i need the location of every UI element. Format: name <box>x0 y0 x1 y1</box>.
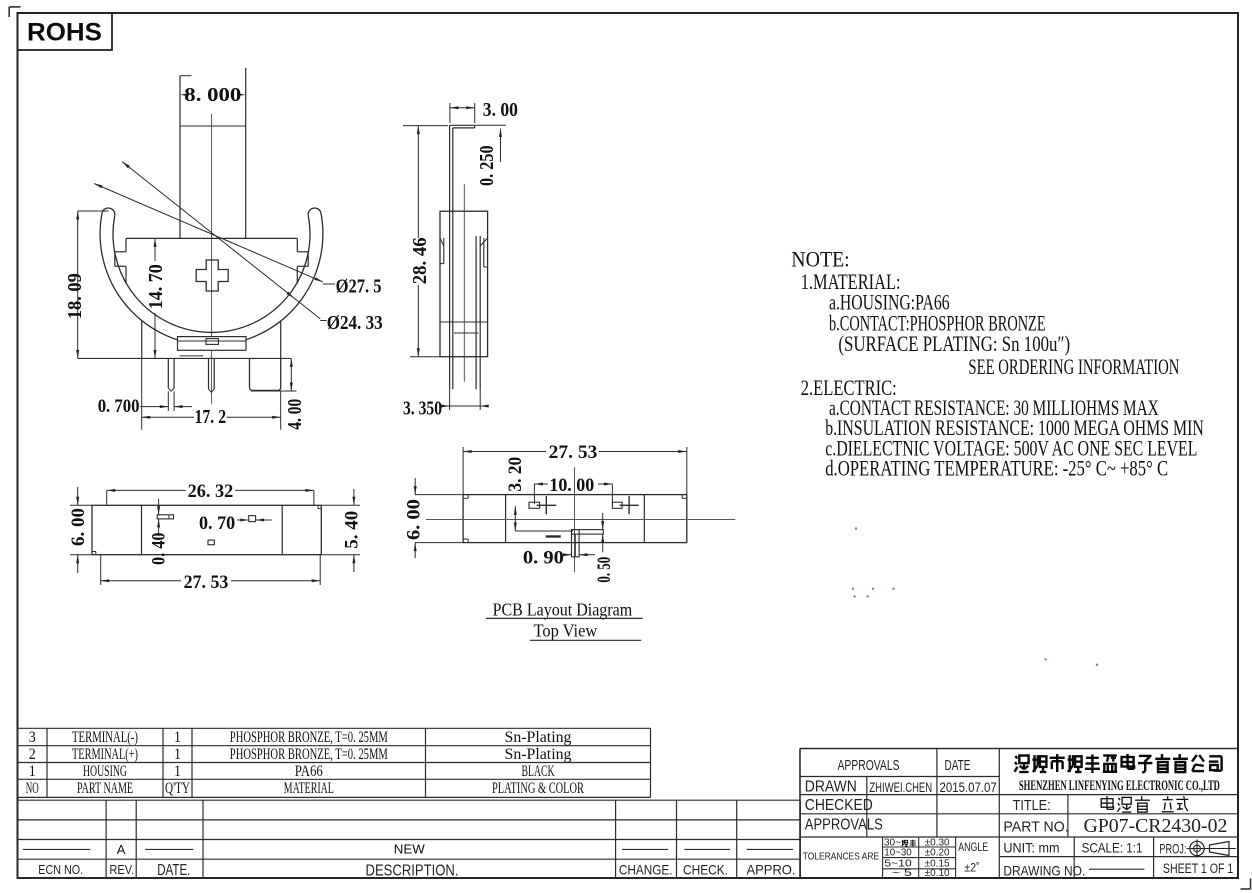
svg-text:PLATING & COLOR: PLATING & COLOR <box>492 780 584 797</box>
svg-text:APPRO.: APPRO. <box>747 862 796 878</box>
svg-text:Sn-Plating: Sn-Plating <box>505 729 572 746</box>
svg-text:CHANGE.: CHANGE. <box>619 862 673 878</box>
svg-text:TERMINAL(+): TERMINAL(+) <box>72 746 138 763</box>
svg-text:3: 3 <box>29 729 36 746</box>
svg-text:1: 1 <box>174 746 181 763</box>
svg-text:14. 70: 14. 70 <box>145 264 167 309</box>
svg-text:SEE ORDERING INFORMATION: SEE ORDERING INFORMATION <box>968 354 1179 379</box>
svg-text:A: A <box>117 842 126 857</box>
svg-text:PHOSPHOR BRONZE, T=0. 25MM: PHOSPHOR BRONZE, T=0. 25MM <box>230 746 388 763</box>
svg-text:18. 09: 18. 09 <box>64 273 86 319</box>
svg-text:CHECKED: CHECKED <box>805 797 873 814</box>
svg-text:28. 46: 28. 46 <box>409 237 431 284</box>
svg-text:~ 5: ~ 5 <box>892 867 912 879</box>
svg-text:5. 40: 5. 40 <box>341 511 362 549</box>
svg-text:PHOSPHOR BRONZE, T=0. 25MM: PHOSPHOR BRONZE, T=0. 25MM <box>230 729 388 746</box>
svg-text:27. 53: 27. 53 <box>184 572 229 593</box>
svg-text:REV.: REV. <box>109 862 134 877</box>
svg-text:UNIT: mm: UNIT: mm <box>1003 840 1059 856</box>
svg-text:10. 00: 10. 00 <box>549 475 594 496</box>
svg-text:NOTE:: NOTE: <box>791 246 849 271</box>
svg-text:6. 00: 6. 00 <box>403 499 424 540</box>
svg-text:6. 00: 6. 00 <box>68 508 89 546</box>
svg-text:HOUSING: HOUSING <box>83 763 127 780</box>
svg-text:(SURFACE PLATING: Sn 100u″): (SURFACE PLATING: Sn 100u″) <box>838 331 1070 356</box>
svg-text:PART NAME: PART NAME <box>77 780 133 797</box>
svg-text:NEW: NEW <box>394 842 426 857</box>
svg-text:Ø24. 33: Ø24. 33 <box>327 312 383 334</box>
svg-text:APPROVALS: APPROVALS <box>805 816 883 833</box>
svg-text:TOLERANCES ARE: TOLERANCES ARE <box>803 850 879 862</box>
svg-text:3. 20: 3. 20 <box>505 457 526 492</box>
svg-text:3. 350: 3. 350 <box>403 397 442 419</box>
svg-text:4. 00: 4. 00 <box>284 399 306 430</box>
svg-text:CHECK.: CHECK. <box>683 862 728 878</box>
svg-text:TITLE:: TITLE: <box>1013 798 1051 814</box>
svg-text:2015.07.07: 2015.07.07 <box>940 780 997 795</box>
svg-text:PA66: PA66 <box>295 763 323 780</box>
svg-text:0. 90: 0. 90 <box>523 548 564 569</box>
svg-text:ANGLE: ANGLE <box>958 842 988 854</box>
svg-text:Q'TY: Q'TY <box>165 780 190 797</box>
svg-text:1: 1 <box>174 763 181 780</box>
svg-text:ROHS: ROHS <box>27 19 102 47</box>
svg-text:SCALE: 1:1: SCALE: 1:1 <box>1082 840 1143 856</box>
svg-text:DATE: DATE <box>945 757 971 774</box>
svg-text:PART NO.: PART NO. <box>1003 820 1068 836</box>
svg-text:0. 40: 0. 40 <box>148 532 169 565</box>
svg-text:d.OPERATING TEMPERATURE: -25°: d.OPERATING TEMPERATURE: -25° C~ +85° C <box>825 456 1168 481</box>
svg-text:BLACK: BLACK <box>522 763 555 780</box>
svg-text:0. 250: 0. 250 <box>476 145 498 186</box>
svg-text:DATE.: DATE. <box>157 862 190 879</box>
svg-text:DESCRIPTION.: DESCRIPTION. <box>366 863 459 880</box>
svg-text:1: 1 <box>29 763 36 780</box>
svg-text:TERMINAL(-): TERMINAL(-) <box>72 729 138 746</box>
svg-text:GP07-CR2430-02: GP07-CR2430-02 <box>1084 815 1228 837</box>
svg-text:NO: NO <box>26 780 39 797</box>
svg-text:MATERIAL: MATERIAL <box>284 780 334 797</box>
svg-text:27. 53: 27. 53 <box>549 442 598 463</box>
svg-text:Ø27. 5: Ø27. 5 <box>336 275 382 297</box>
svg-text:Sn-Plating: Sn-Plating <box>505 746 572 763</box>
svg-text:Top View: Top View <box>534 621 599 641</box>
svg-text:26. 32: 26. 32 <box>188 481 234 502</box>
svg-text:17. 2: 17. 2 <box>195 406 227 428</box>
svg-text:DRAWN: DRAWN <box>805 779 857 796</box>
svg-text:APPROVALS: APPROVALS <box>838 757 900 774</box>
svg-text:3. 00: 3. 00 <box>483 99 518 121</box>
svg-text:SHENZHEN LINFENYING ELECTRONIC: SHENZHEN LINFENYING ELECTRONIC CO.,LTD <box>1019 778 1220 794</box>
svg-text:SHEET 1 OF 1: SHEET 1 OF 1 <box>1163 861 1233 876</box>
svg-text:8. 000: 8. 000 <box>184 84 241 106</box>
svg-text:0. 700: 0. 700 <box>98 396 140 417</box>
svg-text:0. 50: 0. 50 <box>594 557 615 583</box>
svg-text:DRAWING NO.: DRAWING NO. <box>1003 863 1085 879</box>
svg-text:2: 2 <box>29 746 36 763</box>
svg-text:0. 70: 0. 70 <box>199 513 235 534</box>
svg-text:ECN NO.: ECN NO. <box>38 862 83 877</box>
svg-text:PCB Layout Diagram: PCB Layout Diagram <box>493 599 633 619</box>
svg-text:±2˚: ±2˚ <box>964 862 979 874</box>
svg-text:1: 1 <box>174 729 181 746</box>
svg-text:ZHIWEI.CHEN: ZHIWEI.CHEN <box>869 780 932 795</box>
svg-text:±0.10: ±0.10 <box>925 867 950 879</box>
svg-text:PROJ:: PROJ: <box>1159 841 1186 857</box>
